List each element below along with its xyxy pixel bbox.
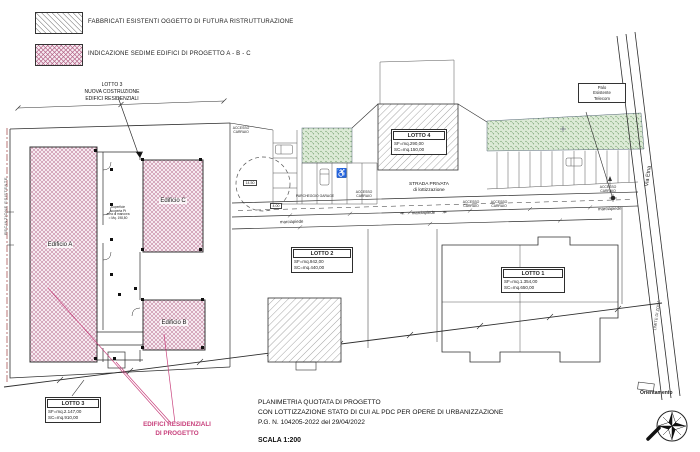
lotto3-values: SF=mq.2.147,00 SC=mq.910,00: [47, 408, 99, 421]
legend-label-existing: FABBRICATI ESISTENTI OGGETTO DI FUTURA R…: [88, 19, 388, 25]
accesso-carraio-label-3: ACCESSO CARRAIO: [459, 201, 483, 209]
lotto2-title: LOTTO 2: [293, 249, 351, 258]
lotto1-values: SF=mq.1.354,00 SC=mq.650,00: [503, 278, 563, 291]
strada-privata-label: STRADA PRIVATA di lottizzazione: [396, 182, 462, 195]
title-block: PLANIMETRIA QUOTATA DI PROGETTO CON LOTT…: [258, 398, 598, 446]
legend-swatch-project: [35, 44, 83, 66]
callout-edifici-progetto: EDIFICI RESIDENZIALI DI PROGETTO: [118, 421, 236, 438]
title-line-3: P.G. N. 104205-2022 del 29/04/2022: [258, 418, 598, 428]
title-line-2: CON LOTTIZZAZIONE STATO DI CUI AL PDC PE…: [258, 408, 598, 418]
label-edificio-c: Edificio C: [146, 198, 200, 204]
lotto1-title: LOTTO 1: [503, 269, 563, 278]
sidewalk-label-right: marciapiede: [598, 206, 622, 212]
orientamento-label: Orientamento: [640, 390, 673, 396]
handicap-parking-icon: ♿: [336, 168, 347, 179]
lotbox-lotto2: LOTTO 2 SF=mq.942,00 SC=mq.440,00: [291, 247, 353, 273]
sidewalk-label-left: marciapiede: [280, 219, 304, 225]
dim-circle: 14.50: [243, 180, 257, 186]
accesso-carraio-label-4: ACCESSO CARRAIO: [487, 201, 511, 209]
title-line-1: PLANIMETRIA QUOTATA DI PROGETTO: [258, 398, 598, 408]
accesso-carraio-label-2: ACCESSO CARRAIO: [352, 191, 376, 199]
lotbox-lotto4: LOTTO 4 SF=mq.290,00 SC=mq.150,00: [391, 129, 447, 155]
arrow-left-icon: ≪: [400, 210, 405, 215]
edificio-a-text: Edificio A: [47, 242, 74, 248]
arrow-right-icon: ≫: [442, 209, 447, 214]
lotto4-title: LOTTO 4: [393, 131, 445, 140]
compass-rose: [648, 411, 687, 441]
sidewalk-center-text: marciapiede: [412, 210, 436, 216]
sidewalk-label-center: ≪ marciapiede ≫: [400, 209, 447, 216]
legend-swatch-existing: [35, 12, 83, 34]
legend-label-project: INDICAZIONE SEDIME EDIFICI DI PROGETTO A…: [88, 51, 388, 57]
label-edificio-a: Edificio A: [32, 242, 88, 248]
accesso-carraio-label-1: ACCESSO CARRAIO: [229, 127, 253, 135]
lotto4-values: SF=mq.290,00 SC=mq.150,00: [393, 140, 445, 153]
scale-label: SCALA 1:200: [258, 436, 598, 446]
callout-nuova-costruzione: LOTTO 3 NUOVA COSTRUZIONE EDIFICI RESIDE…: [62, 82, 162, 102]
dim-road: 4.00: [270, 203, 282, 209]
site-plan-sheet: FABBRICATI ESISTENTI OGGETTO DI FUTURA R…: [0, 0, 700, 452]
recinzione-label: RECINZIONE ESISTENTE: [3, 177, 8, 235]
label-edificio-b: Edificio B: [146, 320, 202, 326]
accesso-carraio-label-5: ACCESSO CARRAIO: [596, 186, 620, 194]
courtyard-note: Superficie scoperta Pt area di manovra =…: [96, 206, 140, 221]
via-etna-road: [617, 32, 680, 400]
site-plan-linework: [0, 0, 700, 452]
lotto2-values: SF=mq.942,00 SC=mq.440,00: [293, 258, 351, 271]
lotbox-lotto1: LOTTO 1 SF=mq.1.354,00 SC=mq.650,00: [501, 267, 565, 293]
edificio-b-text: Edificio B: [160, 320, 187, 326]
edificio-c-text: Edificio C: [159, 198, 186, 204]
palo-telecom-box: Palo Esistente Telecom: [578, 83, 626, 103]
parcheggio-garage-label: PARCHEGGIO GARAGE: [290, 195, 340, 199]
lotto3-title: LOTTO 3: [47, 399, 99, 408]
lotbox-lotto3: LOTTO 3 SF=mq.2.147,00 SC=mq.910,00: [45, 397, 101, 423]
